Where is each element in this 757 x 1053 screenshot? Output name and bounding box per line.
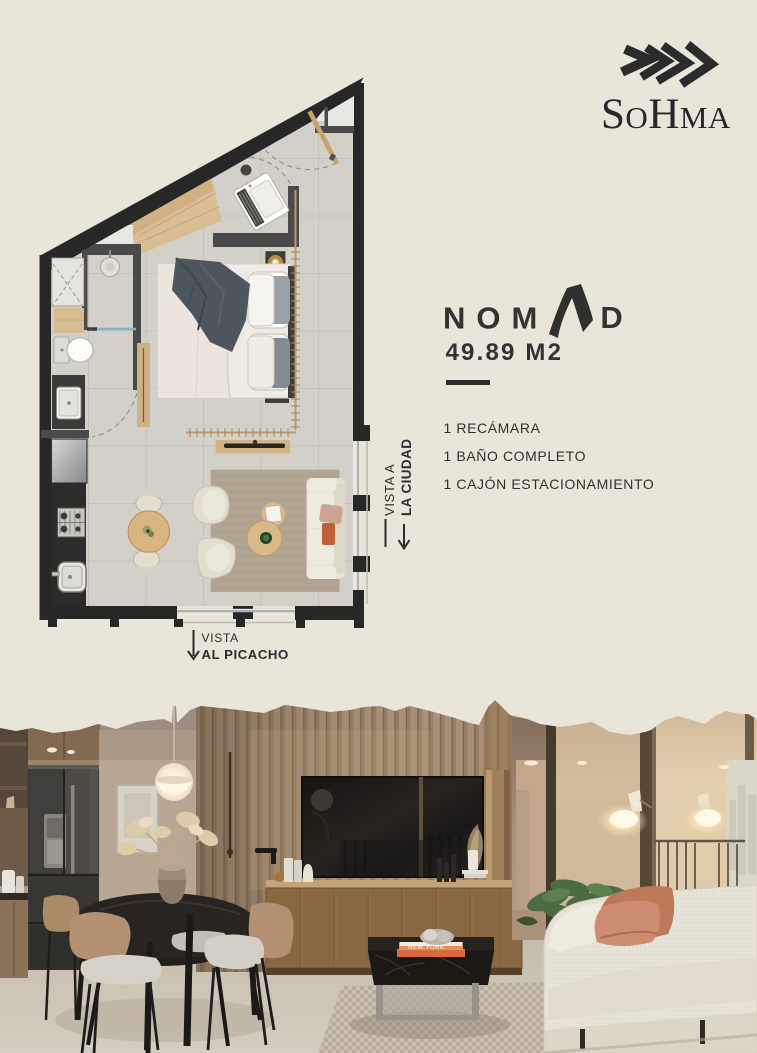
svg-text:NEW YORK: NEW YORK (408, 945, 445, 951)
